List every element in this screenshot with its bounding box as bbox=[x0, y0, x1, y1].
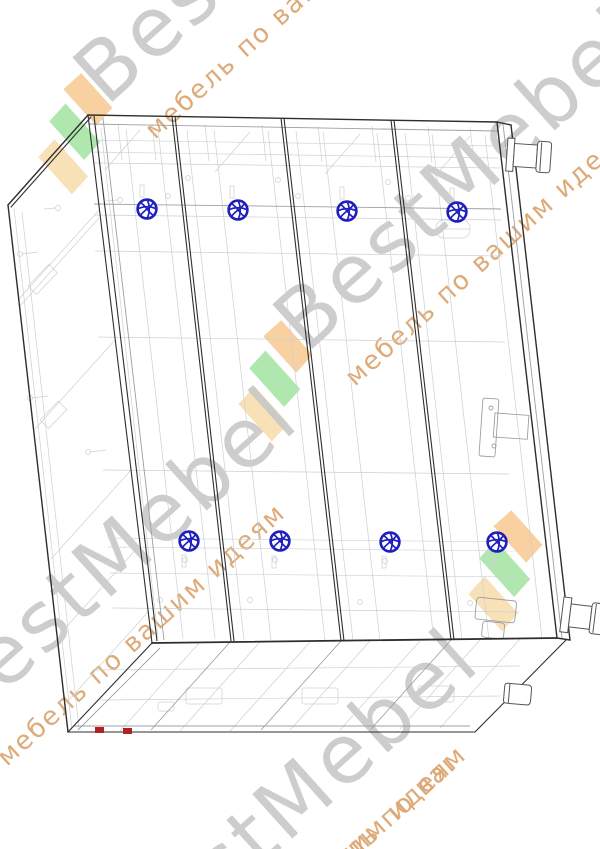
left-panel-lines bbox=[14, 208, 148, 730]
bottom-panel-lines bbox=[92, 639, 520, 731]
wardrobe-wireframe-drawing bbox=[0, 0, 600, 849]
red-mark bbox=[123, 728, 132, 734]
cam-fitting-icon bbox=[271, 532, 290, 551]
hinge-bracket bbox=[475, 398, 529, 639]
cam-fitting-icon bbox=[138, 200, 157, 219]
adjustable-foot-bottom bbox=[560, 597, 600, 637]
door-gap-lines bbox=[88, 115, 454, 643]
plinth-foot bbox=[503, 683, 532, 705]
internal-wireframe-lines bbox=[44, 124, 542, 641]
cam-fitting-icon bbox=[448, 203, 467, 222]
cam-fitting-icon bbox=[180, 532, 199, 551]
cam-fitting-icon bbox=[338, 202, 357, 221]
cam-fitting-icon bbox=[381, 533, 400, 552]
adjustable-foot-top bbox=[506, 138, 552, 174]
cam-fitting-icon bbox=[229, 201, 248, 220]
drawing-canvas: BestMebel мебель по вашим идеям BestMebe… bbox=[0, 0, 600, 849]
cam-fitting-icon bbox=[488, 533, 507, 552]
cabinet-outline bbox=[8, 115, 570, 732]
red-mark bbox=[95, 727, 104, 733]
assembly-error-marks bbox=[95, 727, 132, 734]
